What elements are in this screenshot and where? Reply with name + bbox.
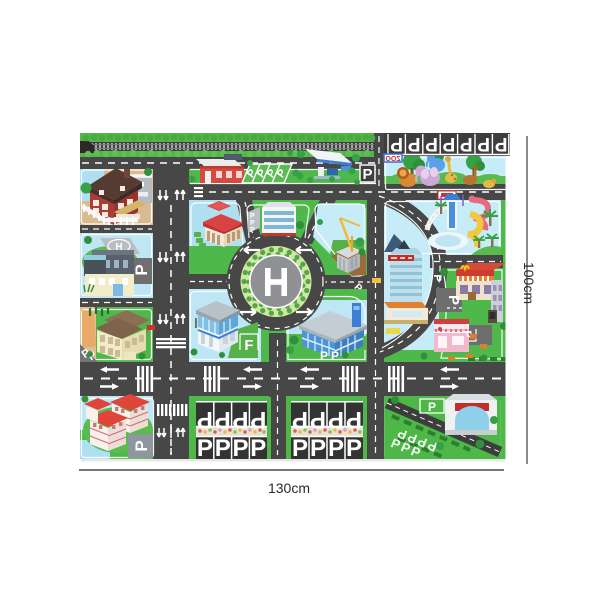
svg-text:P: P	[331, 349, 339, 363]
svg-text:P: P	[215, 406, 231, 433]
svg-text:P: P	[310, 406, 326, 433]
svg-text:P: P	[310, 435, 326, 462]
svg-text:P: P	[390, 133, 403, 154]
svg-text:130cm: 130cm	[268, 480, 310, 496]
svg-text:P: P	[132, 440, 151, 451]
svg-text:P: P	[132, 264, 151, 275]
svg-text:P: P	[425, 133, 438, 154]
svg-text:ZOO: ZOO	[385, 156, 401, 163]
svg-text:P: P	[442, 133, 455, 154]
svg-text:100cm: 100cm	[521, 262, 537, 304]
svg-text:P: P	[477, 133, 490, 154]
svg-text:P: P	[197, 435, 213, 462]
svg-text:P: P	[320, 349, 328, 363]
svg-text:P: P	[362, 166, 372, 183]
svg-text:F: F	[244, 337, 253, 354]
svg-text:P: P	[346, 435, 362, 462]
svg-text:P: P	[445, 295, 462, 305]
svg-text:P: P	[292, 435, 308, 462]
svg-text:P: P	[250, 227, 255, 234]
svg-text:P: P	[250, 220, 255, 227]
svg-text:P: P	[328, 435, 344, 462]
svg-text:P: P	[250, 435, 266, 462]
svg-text:P: P	[250, 406, 266, 433]
svg-text:P: P	[215, 435, 231, 462]
svg-text:P: P	[494, 133, 507, 154]
svg-text:P: P	[407, 133, 420, 154]
svg-text:P: P	[250, 213, 255, 220]
svg-text:P: P	[232, 435, 248, 462]
svg-text:P: P	[431, 274, 443, 281]
svg-text:P: P	[460, 133, 473, 154]
svg-text:P: P	[428, 400, 436, 414]
